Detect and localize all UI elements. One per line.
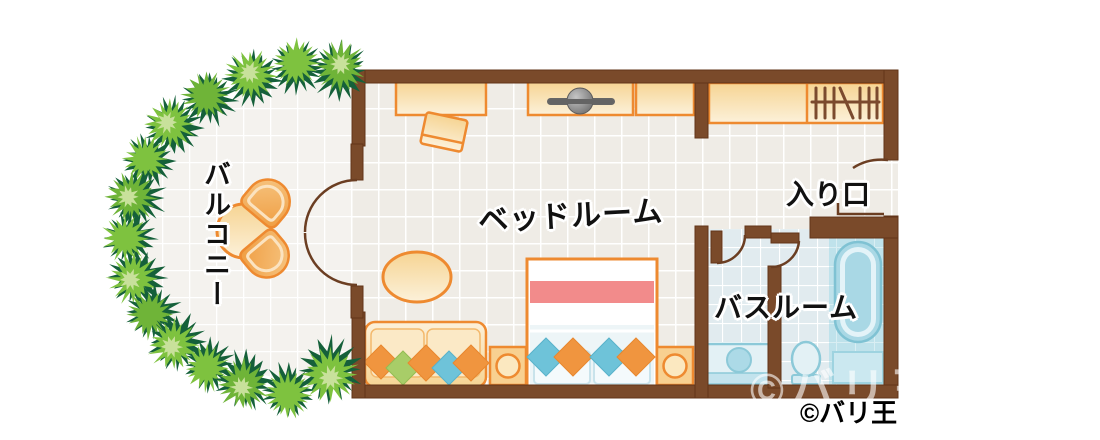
- bed-blanket-stripe: [530, 281, 654, 303]
- sofa: [364, 322, 489, 387]
- desk-chair: [420, 112, 468, 152]
- wall-right-upper: [884, 70, 898, 160]
- nightstand-right: [657, 347, 693, 385]
- desk: [396, 82, 486, 115]
- wall-left-lower: [352, 312, 365, 398]
- cabinet: [636, 82, 694, 115]
- wall-hall-stub: [695, 83, 708, 138]
- wall-bathroom-top-a: [745, 226, 771, 238]
- entrance-label: 入り口: [786, 173, 870, 213]
- coffee-table: [383, 252, 451, 302]
- floor-plan: バルコニー ベッドルーム 入り口 バスルーム ©バリ王 ©バリ王: [0, 0, 1100, 440]
- wall-bathroom-top-b: [810, 217, 898, 238]
- balcony-label: バルコニー: [196, 160, 235, 310]
- wall-top: [352, 70, 898, 83]
- watermark-caption: ©バリ王: [800, 393, 897, 430]
- nightstand-left: [490, 347, 526, 385]
- bathroom-label: バスルーム: [714, 286, 858, 326]
- wall-bathroom-left: [695, 226, 708, 398]
- double-bed: [527, 259, 657, 387]
